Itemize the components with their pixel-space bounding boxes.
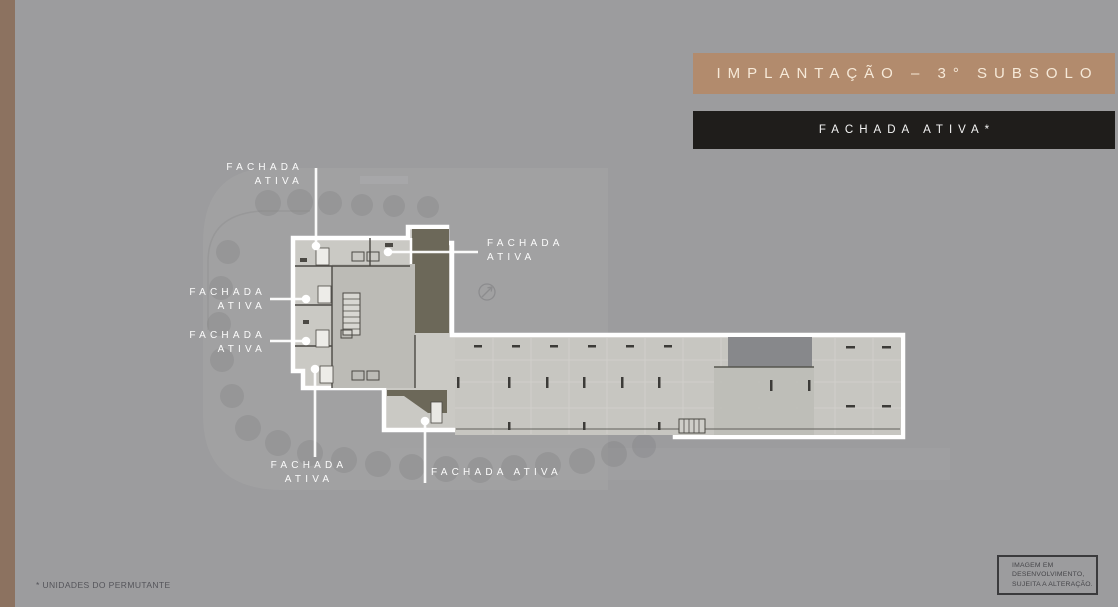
label-line: ATIVA [487,251,564,265]
slide: IMPLANTAÇÃO – 3° SUBSOLO FACHADA ATIVA* … [0,0,1118,607]
label-line: FACHADA [156,286,266,300]
label-line: FACHADA [156,329,266,343]
fachada-ativa-label-left-upper: FACHADA ATIVA [156,286,266,313]
label-line: FACHADA [193,161,303,175]
parking-dark-block [728,337,812,367]
fachada-ativa-label-bottom-center: FACHADA ATIVA [431,466,562,480]
title-banner: IMPLANTAÇÃO – 3° SUBSOLO [693,53,1115,94]
label-line: FACHADA [253,459,365,473]
fachada-ativa-label-bottom-left: FACHADA ATIVA [253,459,365,486]
ramp-area [412,229,449,333]
annex-room [431,402,442,423]
parking-floor [455,338,901,435]
fachada-ativa-label-top-left: FACHADA ATIVA [193,161,303,188]
label-line: FACHADA [487,237,564,251]
page-title: IMPLANTAÇÃO – 3° SUBSOLO [716,65,1098,82]
compass-icon [479,284,495,300]
label-line: ATIVA [193,175,303,189]
label-line: ATIVA [156,300,266,314]
label-line: FACHADA ATIVA [431,466,562,480]
label-line: ATIVA [156,343,266,357]
page-subtitle: FACHADA ATIVA* [819,124,995,136]
fachada-ativa-label-left-lower: FACHADA ATIVA [156,329,266,356]
footnote: * UNIDADES DO PERMUTANTE [36,580,171,590]
left-accent-stripe [0,0,15,607]
fachada-ativa-label-top-right: FACHADA ATIVA [487,237,564,264]
disclaimer-box: IMAGEM EM DESENVOLVIMENTO, SUJEITA A ALT… [997,555,1098,595]
parking-sub-block [714,367,814,435]
disclaimer-line: SUJEITA A ALTERAÇÃO. [1012,580,1096,590]
disclaimer-line: IMAGEM EM [1012,561,1096,571]
label-line: ATIVA [253,473,365,487]
parking-stair [679,419,705,433]
tower-stair [343,293,360,335]
disclaimer-line: DESENVOLVIMENTO, [1012,570,1096,580]
subtitle-banner: FACHADA ATIVA* [693,111,1115,149]
